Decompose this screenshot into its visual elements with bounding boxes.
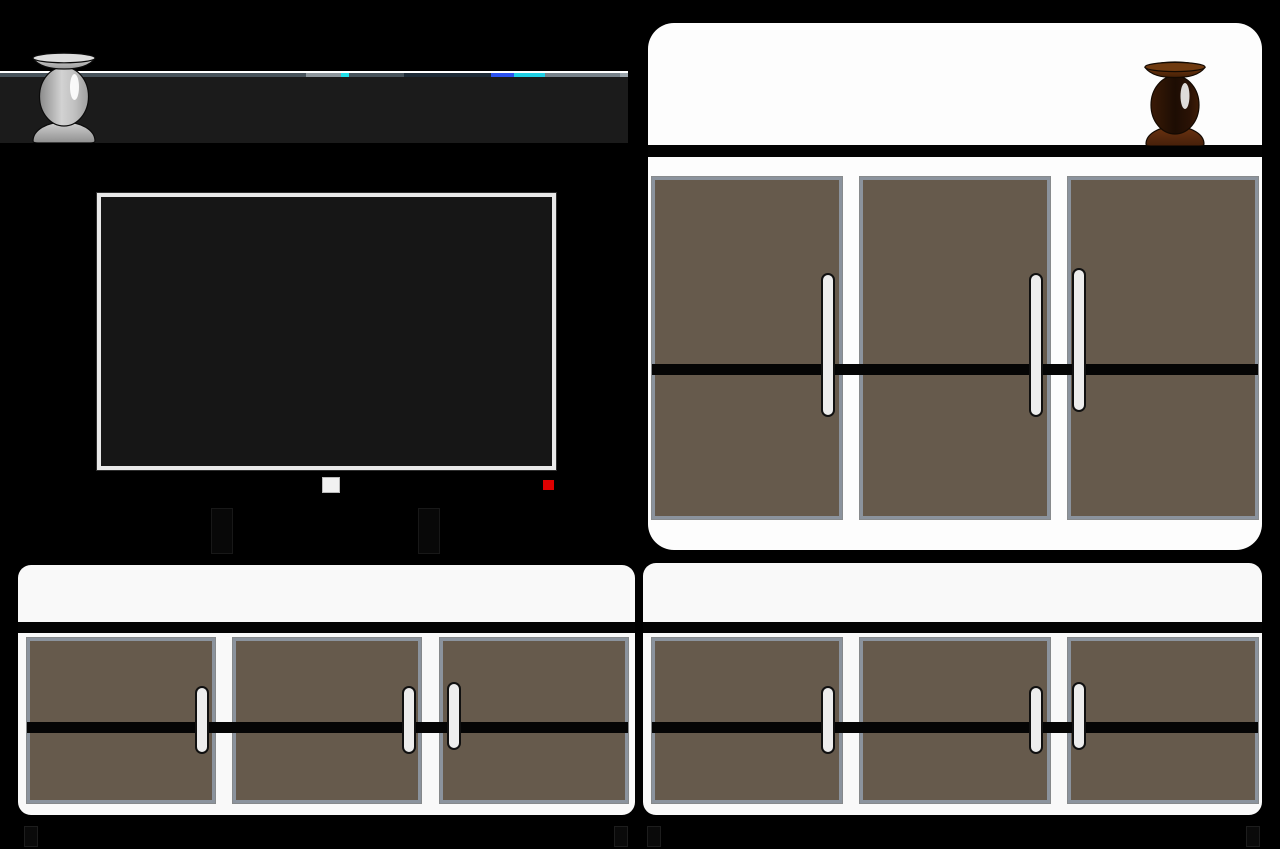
tall-cabinet-top-band [648,145,1262,157]
cabinet-foot [614,826,628,847]
brown-vase [1144,60,1206,146]
tall-cabinet-handle-right [1072,268,1086,412]
brown-vase-body [1151,76,1199,134]
cabinet-foot [647,826,661,847]
tall-cabinet-door-middle [860,177,1050,519]
brown-vase-rim [1145,62,1205,71]
low-right-door-middle [860,638,1050,803]
wall-shelf [0,51,628,143]
low-right-door-left [652,638,842,803]
tall-cabinet-door-stripe [652,364,1258,375]
tv-leg-right [418,508,440,554]
tall-cabinet [648,23,1262,550]
tall-cabinet-handle-left [821,273,835,417]
silver-vase-body [40,67,89,126]
low-cabinet-right [643,563,1262,815]
low-left-door-middle [233,638,421,803]
low-left-door-stripe [27,722,628,733]
brown-vase-highlight [1181,83,1190,109]
cabinet-foot [1246,826,1260,847]
tall-cabinet-door-left [652,177,842,519]
low-left-handle-middle [402,686,416,754]
low-right-handle-middle [1029,686,1043,754]
living-room-illustration [0,0,1280,849]
low-right-door-stripe [652,722,1258,733]
tall-cabinet-door-right [1068,177,1258,519]
low-left-door-right [440,638,628,803]
tv-leg-left [211,508,233,554]
silver-vase-rim [33,53,95,63]
tall-cabinet-handle-middle [1029,273,1043,417]
tv-standby-led [543,480,554,490]
low-left-handle-right [447,682,461,750]
low-right-top-band [643,622,1262,633]
low-right-handle-left [821,686,835,754]
tv-power-button [322,477,340,493]
cabinet-foot [24,826,38,847]
low-left-top-band [18,622,635,633]
tv-screen [97,193,556,470]
silver-vase-highlight [70,74,79,100]
low-left-handle-left [195,686,209,754]
low-cabinet-left [18,565,635,815]
low-right-handle-right [1072,682,1086,750]
low-left-door-left [27,638,215,803]
low-right-door-right [1068,638,1258,803]
silver-vase [31,51,97,143]
